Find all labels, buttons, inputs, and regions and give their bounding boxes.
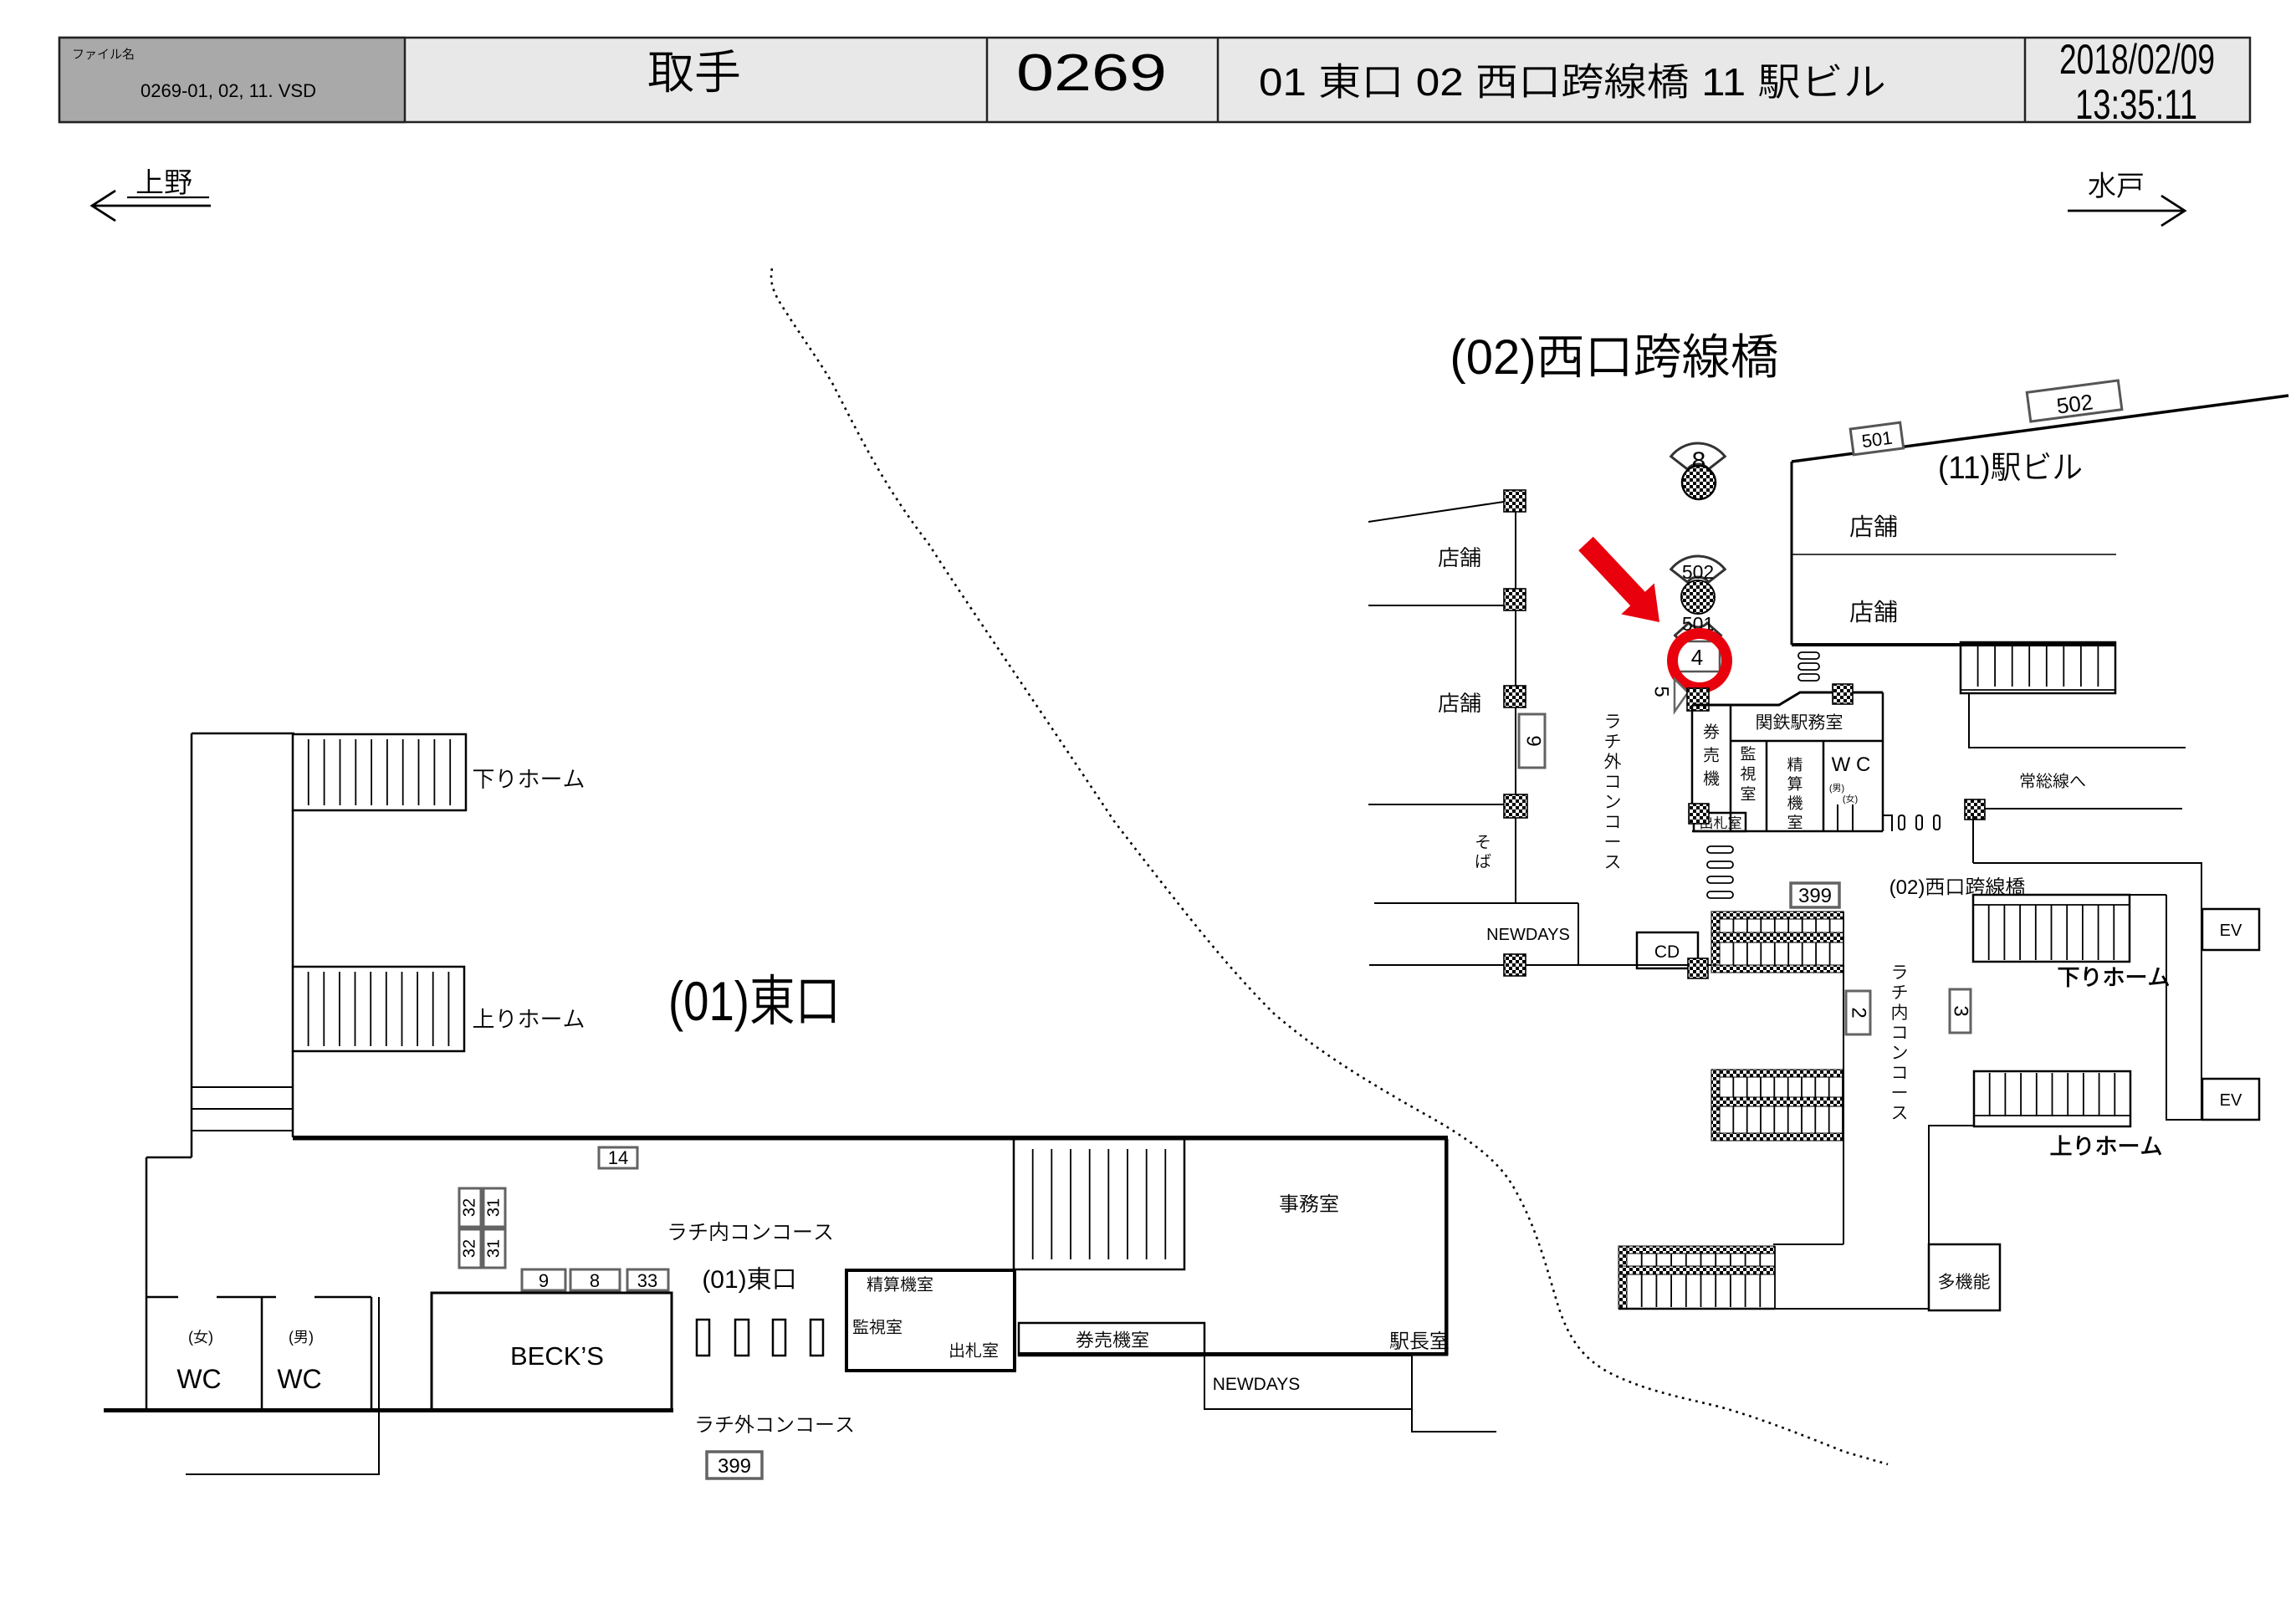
svg-text:店舗: 店舗 bbox=[1438, 545, 1481, 570]
svg-text:WC: WC bbox=[277, 1364, 321, 1394]
svg-text:9: 9 bbox=[539, 1270, 549, 1291]
svg-text:9: 9 bbox=[1522, 735, 1545, 746]
svg-text:32: 32 bbox=[460, 1239, 478, 1258]
svg-text:監視室: 監視室 bbox=[852, 1319, 903, 1337]
svg-text:ラチ外コンコース: ラチ外コンコース bbox=[694, 1414, 855, 1437]
svg-text:上りホーム: 上りホーム bbox=[473, 1007, 586, 1032]
svg-text:399: 399 bbox=[718, 1455, 751, 1478]
svg-text:取手: 取手 bbox=[647, 46, 741, 99]
svg-text:ファイル名: ファイル名 bbox=[72, 48, 135, 62]
svg-text:502: 502 bbox=[2055, 389, 2094, 418]
svg-text:EV: EV bbox=[2220, 1091, 2242, 1110]
svg-text:ラチ内コンコース: ラチ内コンコース bbox=[667, 1221, 834, 1244]
svg-text:5: 5 bbox=[1650, 686, 1673, 697]
svg-text:2018/02/09: 2018/02/09 bbox=[2059, 36, 2215, 83]
svg-text:0269-01, 02, 11. VSD: 0269-01, 02, 11. VSD bbox=[141, 80, 316, 101]
svg-text:(女): (女) bbox=[1843, 794, 1858, 804]
svg-text:多機能: 多機能 bbox=[1938, 1273, 1991, 1292]
svg-text:14: 14 bbox=[608, 1147, 628, 1168]
svg-text:店舗: 店舗 bbox=[1849, 600, 1898, 626]
svg-text:31: 31 bbox=[484, 1239, 503, 1258]
svg-text:店舗: 店舗 bbox=[1849, 514, 1898, 541]
svg-text:399: 399 bbox=[1798, 885, 1832, 907]
svg-text:(11)駅ビル: (11)駅ビル bbox=[1938, 451, 2083, 486]
svg-text:2: 2 bbox=[1848, 1007, 1870, 1018]
svg-text:(01)東口: (01)東口 bbox=[668, 970, 841, 1032]
svg-text:ラチ内コンコース: ラチ内コンコース bbox=[1891, 963, 1909, 1123]
svg-text:(01)東口: (01)東口 bbox=[702, 1266, 796, 1294]
svg-text:NEWDAYS: NEWDAYS bbox=[1486, 926, 1570, 944]
svg-text:関鉄駅務室: 関鉄駅務室 bbox=[1756, 713, 1843, 733]
svg-text:出札室: 出札室 bbox=[949, 1342, 999, 1361]
svg-text:下りホーム: 下りホーム bbox=[473, 767, 586, 792]
svg-text:券売機室: 券売機室 bbox=[1076, 1330, 1149, 1351]
svg-text:(男): (男) bbox=[289, 1329, 314, 1346]
svg-text:常総線へ: 常総線へ bbox=[2019, 773, 2086, 791]
svg-text:上りホーム: 上りホーム bbox=[2050, 1134, 2163, 1159]
svg-text:32: 32 bbox=[460, 1198, 478, 1217]
svg-text:501: 501 bbox=[1860, 427, 1894, 452]
svg-text:31: 31 bbox=[484, 1198, 503, 1217]
svg-text:CD: CD bbox=[1654, 942, 1680, 962]
svg-text:33: 33 bbox=[637, 1270, 657, 1291]
svg-text:(女): (女) bbox=[188, 1329, 213, 1346]
svg-text:そば: そば bbox=[1475, 834, 1491, 871]
svg-text:EV: EV bbox=[2220, 922, 2242, 940]
svg-text:BECK’S: BECK’S bbox=[510, 1341, 604, 1371]
svg-text:精算機室: 精算機室 bbox=[867, 1276, 933, 1295]
svg-text:3: 3 bbox=[1950, 1005, 1972, 1016]
svg-text:券売機: 券売機 bbox=[1703, 723, 1720, 789]
svg-text:NEWDAYS: NEWDAYS bbox=[1213, 1375, 1301, 1394]
svg-text:駅長室: 駅長室 bbox=[1389, 1330, 1450, 1353]
svg-text:(02)西口跨線橋: (02)西口跨線橋 bbox=[1450, 330, 1778, 385]
svg-text:13:35:11: 13:35:11 bbox=[2075, 81, 2197, 128]
svg-text:8: 8 bbox=[590, 1270, 600, 1291]
svg-text:上野: 上野 bbox=[136, 167, 192, 199]
svg-text:0269: 0269 bbox=[1016, 44, 1167, 102]
svg-text:ラチ外コンコース: ラチ外コンコース bbox=[1604, 712, 1622, 872]
svg-text:監視室: 監視室 bbox=[1740, 746, 1756, 804]
svg-text:事務室: 事務室 bbox=[1279, 1193, 1339, 1216]
svg-text:4: 4 bbox=[1691, 645, 1703, 670]
svg-text:店舗: 店舗 bbox=[1438, 691, 1481, 716]
svg-text:WC: WC bbox=[176, 1364, 221, 1394]
svg-text:01 東口 02 西口跨線橋 11 駅ビル: 01 東口 02 西口跨線橋 11 駅ビル bbox=[1259, 60, 1886, 104]
svg-text:(男): (男) bbox=[1829, 784, 1844, 794]
svg-text:W C: W C bbox=[1832, 753, 1871, 776]
svg-text:下りホーム: 下りホーム bbox=[2058, 965, 2171, 990]
svg-text:水戸: 水戸 bbox=[2088, 171, 2145, 202]
